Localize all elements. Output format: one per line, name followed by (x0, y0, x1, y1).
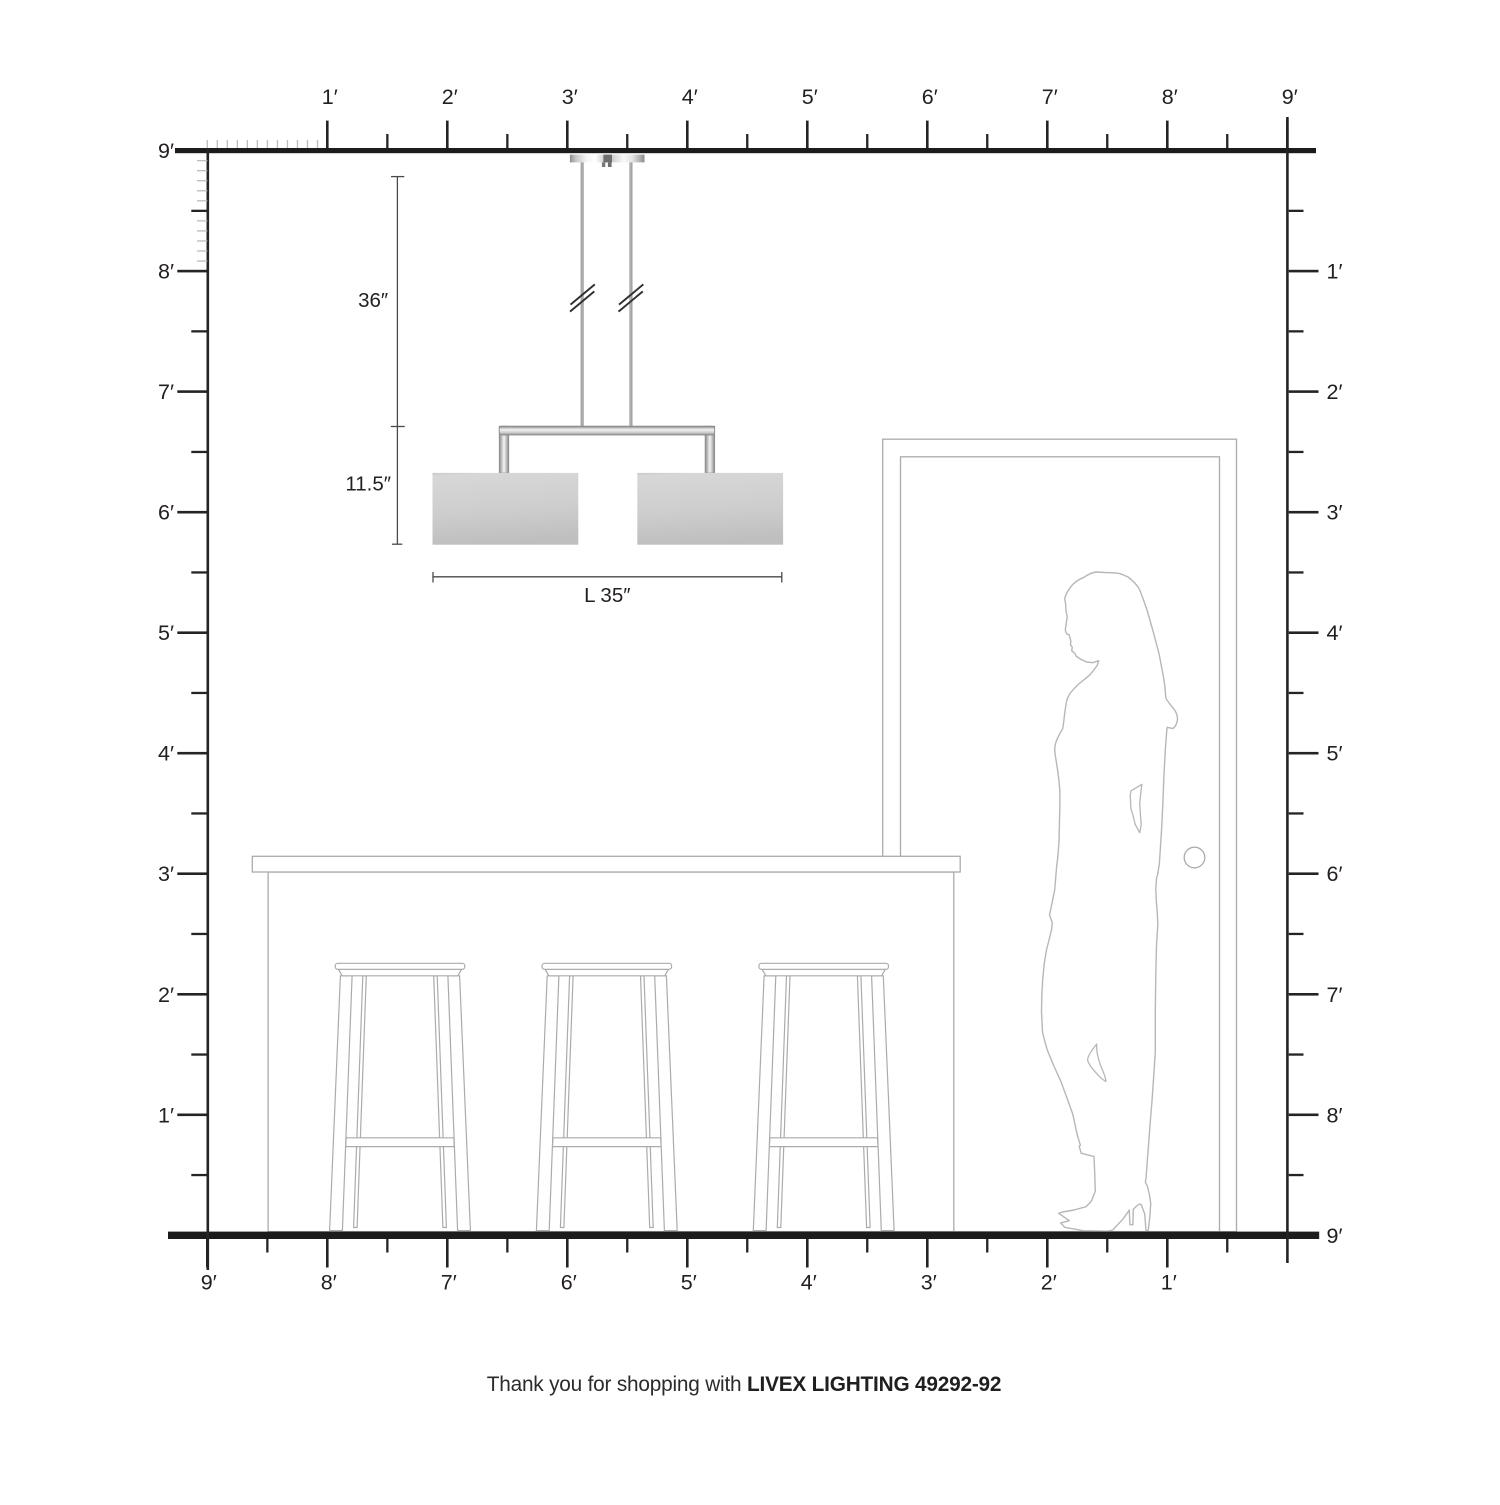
svg-text:1′: 1′ (322, 85, 338, 109)
svg-text:7′: 7′ (1327, 983, 1343, 1007)
svg-text:4′: 4′ (682, 85, 698, 109)
svg-text:4′: 4′ (158, 742, 174, 766)
svg-text:11.5″: 11.5″ (345, 473, 391, 496)
svg-text:2′: 2′ (1327, 380, 1343, 404)
svg-text:9′: 9′ (158, 139, 174, 163)
svg-text:L 35″: L 35″ (584, 584, 630, 607)
svg-text:2′: 2′ (442, 85, 458, 109)
svg-text:3′: 3′ (921, 1271, 937, 1295)
svg-text:8′: 8′ (1327, 1103, 1343, 1127)
svg-text:4′: 4′ (801, 1271, 817, 1295)
svg-text:8′: 8′ (158, 260, 174, 284)
svg-text:7′: 7′ (1042, 85, 1058, 109)
svg-text:4′: 4′ (1327, 621, 1343, 645)
svg-text:36″: 36″ (358, 289, 388, 312)
svg-text:6′: 6′ (158, 501, 174, 525)
svg-text:5′: 5′ (1327, 742, 1343, 766)
svg-text:6′: 6′ (922, 85, 938, 109)
svg-text:1′: 1′ (1161, 1271, 1177, 1295)
svg-text:8′: 8′ (1162, 85, 1178, 109)
svg-text:7′: 7′ (158, 380, 174, 404)
svg-text:3′: 3′ (562, 85, 578, 109)
svg-text:2′: 2′ (158, 983, 174, 1007)
svg-text:Thank you for shopping with LI: Thank you for shopping with LIVEX LIGHTI… (487, 1373, 1002, 1396)
svg-text:5′: 5′ (681, 1271, 697, 1295)
svg-text:9′: 9′ (1327, 1224, 1343, 1248)
svg-text:5′: 5′ (158, 621, 174, 645)
svg-text:1′: 1′ (1327, 260, 1343, 284)
svg-text:9′: 9′ (1282, 85, 1298, 109)
svg-text:7′: 7′ (441, 1271, 457, 1295)
svg-text:2′: 2′ (1041, 1271, 1057, 1295)
svg-text:6′: 6′ (561, 1271, 577, 1295)
svg-text:1′: 1′ (158, 1103, 174, 1127)
svg-text:3′: 3′ (1327, 501, 1343, 525)
svg-text:8′: 8′ (321, 1271, 337, 1295)
svg-text:9′: 9′ (201, 1271, 217, 1295)
svg-text:6′: 6′ (1327, 862, 1343, 886)
svg-text:3′: 3′ (158, 862, 174, 886)
svg-text:5′: 5′ (802, 85, 818, 109)
